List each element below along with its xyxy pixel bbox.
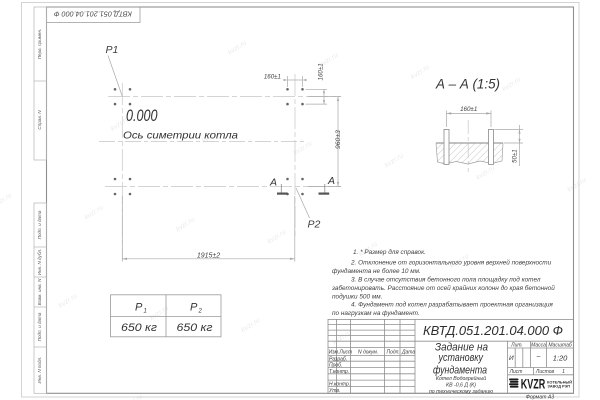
svg-text:Инв. N подл.: Инв. N подл. <box>37 357 42 384</box>
svg-text:Ось симетрии котла: Ось симетрии котла <box>123 130 238 142</box>
svg-text:1: 1 <box>562 369 565 375</box>
svg-text:А: А <box>327 175 335 187</box>
svg-text:забетонировать. Расстояние о: забетонировать. Расстояние от осей крайн… <box>331 284 555 292</box>
svg-text:И: И <box>509 355 514 362</box>
svg-text:N докум.: N докум. <box>358 350 378 356</box>
svg-text:по нагрузкам на фундамент.: по нагрузкам на фундамент. <box>332 309 420 317</box>
svg-text:3. В случае отсутствия бет: 3. В случае отсутствия бетонного пола пл… <box>351 276 541 284</box>
svg-text:160±1: 160±1 <box>264 73 281 80</box>
svg-text:Утв.: Утв. <box>329 388 340 394</box>
svg-text:Лист: Лист <box>509 369 523 375</box>
svg-text:P2: P2 <box>308 219 321 231</box>
svg-text:650 кг: 650 кг <box>177 322 214 334</box>
svg-text:подушки 500 мм.: подушки 500 мм. <box>332 293 382 301</box>
svg-text:Изм.Лист: Изм.Лист <box>329 350 353 356</box>
svg-text:1915±2: 1915±2 <box>197 253 220 260</box>
svg-text:1: 1 <box>144 309 147 315</box>
svg-text:Масштаб: Масштаб <box>548 343 572 349</box>
svg-text:установку: установку <box>438 352 485 364</box>
svg-text:Взам. инв. N: Взам. инв. N <box>37 278 42 305</box>
svg-text:2: 2 <box>198 309 203 315</box>
svg-text:Подп. и дата: Подп. и дата <box>37 210 42 239</box>
svg-text:960±3: 960±3 <box>335 130 342 149</box>
svg-text:Лит.: Лит. <box>510 343 523 349</box>
svg-text:650 кг: 650 кг <box>121 322 158 334</box>
svg-text:Масса: Масса <box>531 343 546 349</box>
svg-text:Н.контр.: Н.контр. <box>329 382 350 388</box>
svg-text:А – А (1:5): А – А (1:5) <box>435 77 500 92</box>
svg-text:Перв. примен.: Перв. примен. <box>37 29 42 60</box>
svg-text:КВТД.051.201.04.000 Ф: КВТД.051.201.04.000 Ф <box>423 323 563 338</box>
svg-text:2. Отклонение от горизонтал: 2. Отклонение от горизонтального уровня … <box>350 259 552 267</box>
svg-text:по техническому заданию: по техническому заданию <box>429 389 493 395</box>
svg-text:ЗАВОД РЭП: ЗАВОД РЭП <box>548 384 571 389</box>
svg-text:KVZR: KVZR <box>521 377 546 392</box>
svg-text:50±1: 50±1 <box>511 149 518 163</box>
svg-text:160±1: 160±1 <box>460 106 477 113</box>
svg-text:Т.контр.: Т.контр. <box>329 369 349 375</box>
svg-text:Листов: Листов <box>535 369 555 375</box>
svg-text:Формат А3: Формат А3 <box>526 394 554 400</box>
svg-text:160±1: 160±1 <box>317 63 324 80</box>
svg-text:Справ. N: Справ. N <box>37 110 42 130</box>
svg-text:Инв. N дубл.: Инв. N дубл. <box>37 249 42 276</box>
svg-text:0.000: 0.000 <box>126 107 158 125</box>
svg-text:Котел Водогрейный: Котел Водогрейный <box>436 375 486 382</box>
svg-text:Дата: Дата <box>401 350 415 356</box>
svg-text:P: P <box>190 302 198 314</box>
svg-text:Подп.: Подп. <box>387 350 400 356</box>
svg-text:А: А <box>269 177 277 189</box>
svg-text:КВ -0,6 Д (К): КВ -0,6 Д (К) <box>446 383 476 389</box>
svg-text:фундамента не более 10 мм.: фундамента не более 10 мм. <box>332 267 421 275</box>
svg-text:P1: P1 <box>106 44 119 56</box>
svg-text:Проб.: Проб. <box>329 363 342 369</box>
svg-text:4. Фундамент под котел раз: 4. Фундамент под котел разрабатывает про… <box>351 301 553 309</box>
svg-text:1. * Размер для справок.: 1. * Размер для справок. <box>353 248 426 256</box>
svg-text:1:20: 1:20 <box>553 354 568 363</box>
svg-text:Подп. и дата: Подп. и дата <box>37 312 42 341</box>
svg-text:P: P <box>135 302 143 314</box>
svg-text:фундамента: фундамента <box>433 365 487 377</box>
svg-text:–: – <box>536 353 541 360</box>
svg-text:КВТД.051.201.04.000 Ф: КВТД.051.201.04.000 Ф <box>54 10 132 19</box>
